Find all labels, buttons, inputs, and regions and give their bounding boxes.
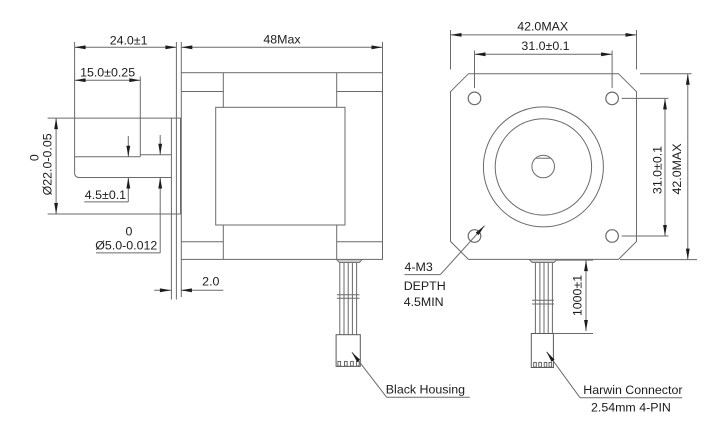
svg-text:2.0: 2.0 — [202, 275, 219, 289]
svg-text:1000±1: 1000±1 — [570, 275, 584, 316]
svg-text:15.0±0.25: 15.0±0.25 — [80, 66, 135, 80]
svg-text:DEPTH: DEPTH — [404, 279, 446, 293]
svg-text:4-M3: 4-M3 — [405, 260, 433, 274]
svg-text:42.0MAX: 42.0MAX — [670, 144, 684, 195]
svg-text:31.0±0.1: 31.0±0.1 — [521, 39, 569, 53]
svg-text:Ø5.0-0.012: Ø5.0-0.012 — [95, 239, 157, 253]
svg-text:4.5MIN: 4.5MIN — [404, 295, 444, 309]
svg-text:31.0±0.1: 31.0±0.1 — [651, 146, 665, 194]
svg-text:0: 0 — [126, 224, 133, 238]
svg-text:42.0MAX: 42.0MAX — [517, 20, 568, 34]
svg-text:Black Housing: Black Housing — [386, 382, 465, 396]
svg-text:Harwin Connector: Harwin Connector — [583, 383, 682, 397]
svg-text:Ø22.0-0.05: Ø22.0-0.05 — [41, 133, 55, 195]
svg-text:24.0±1: 24.0±1 — [110, 34, 148, 48]
svg-text:48Max: 48Max — [263, 33, 301, 47]
svg-text:4.5±0.1: 4.5±0.1 — [85, 188, 126, 202]
svg-text:2.54mm 4-PIN: 2.54mm 4-PIN — [591, 401, 671, 415]
svg-text:0: 0 — [28, 154, 42, 161]
